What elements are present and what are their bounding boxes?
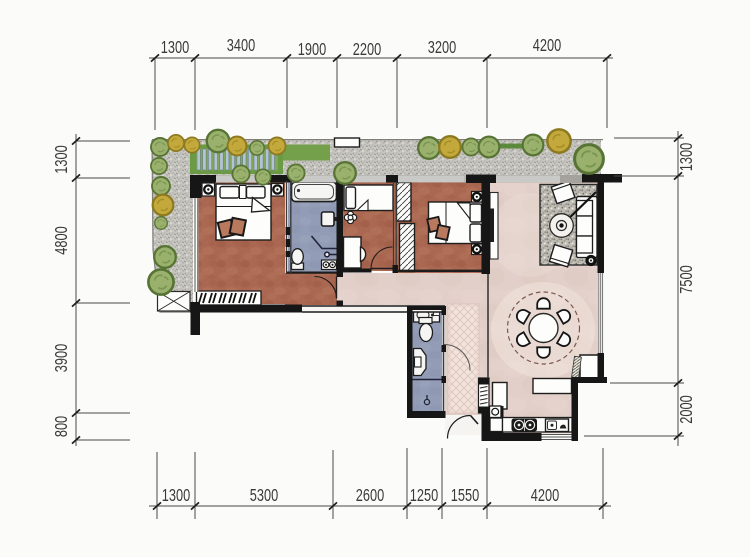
svg-text:1550: 1550 xyxy=(451,486,479,505)
svg-text:4200: 4200 xyxy=(531,486,559,505)
svg-text:3200: 3200 xyxy=(428,38,456,57)
svg-text:3900: 3900 xyxy=(52,344,71,372)
svg-text:7500: 7500 xyxy=(677,265,696,293)
svg-text:2200: 2200 xyxy=(353,40,381,59)
svg-text:1300: 1300 xyxy=(52,145,71,173)
svg-text:2000: 2000 xyxy=(677,395,696,423)
svg-text:1250: 1250 xyxy=(410,486,438,505)
svg-text:800: 800 xyxy=(52,416,71,437)
svg-text:1300: 1300 xyxy=(677,143,696,171)
svg-text:1300: 1300 xyxy=(162,486,190,505)
svg-text:5300: 5300 xyxy=(250,486,278,505)
svg-text:4800: 4800 xyxy=(52,226,71,254)
svg-text:2600: 2600 xyxy=(356,486,384,505)
svg-text:3400: 3400 xyxy=(227,36,255,55)
svg-text:1300: 1300 xyxy=(161,38,189,57)
svg-text:1900: 1900 xyxy=(298,40,326,59)
svg-text:4200: 4200 xyxy=(533,36,561,55)
